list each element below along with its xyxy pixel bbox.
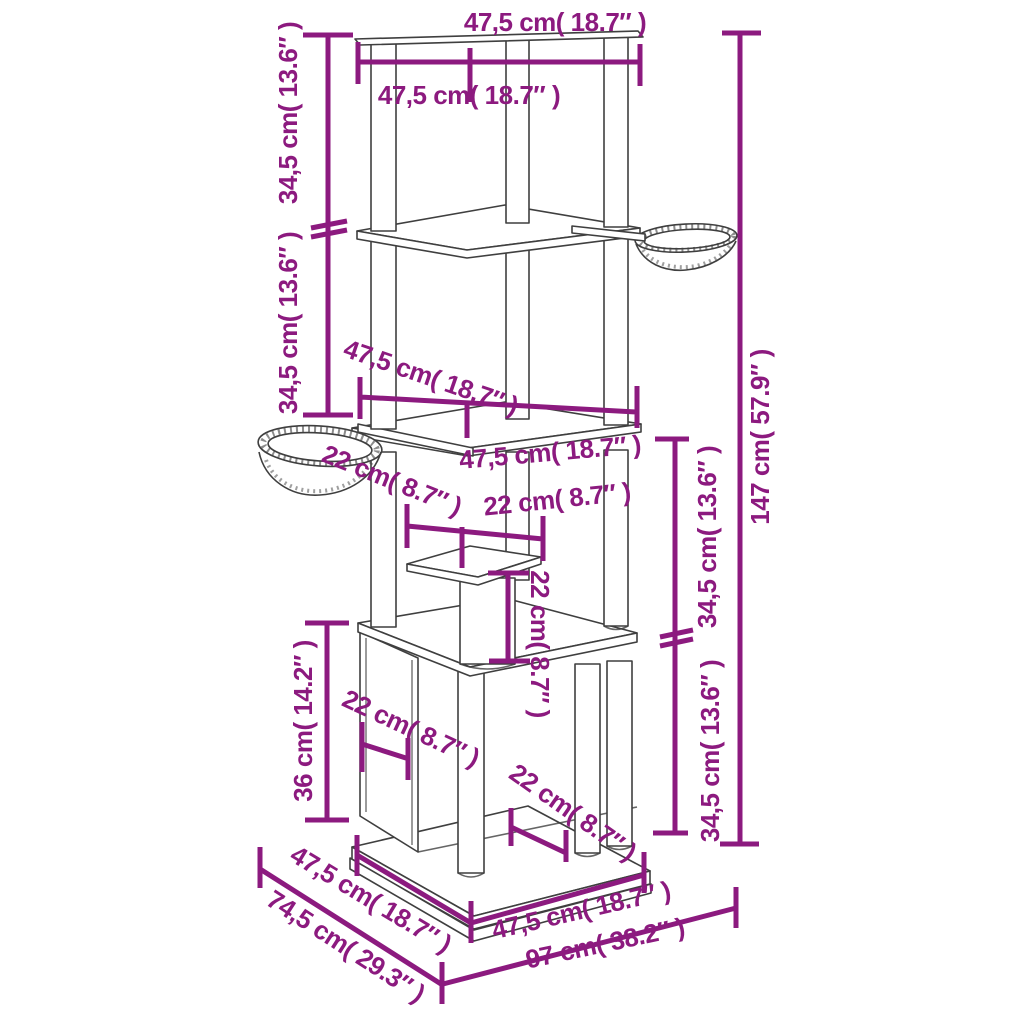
- right-basket: [572, 221, 738, 270]
- dim-label-right-upper-section-height: 34,5 cm( 13.6″ ): [694, 446, 720, 628]
- dim-label-small-post-height: 22 cm( 8.7″ ): [527, 570, 553, 718]
- dim-label-right-lower-section-height: 34,5 cm( 13.6″ ): [697, 660, 723, 842]
- dim-label-condo-height: 36 cm( 14.2″ ): [290, 640, 316, 802]
- dim-label-upper-section-height: 34,5 cm( 13.6″ ): [275, 22, 301, 204]
- dimension-diagram: 47,5 cm( 18.7″ ) 47,5 cm( 18.7″ ) 34,5 c…: [0, 0, 1024, 1024]
- dim-label-top-width: 47,5 cm( 18.7″ ): [464, 9, 646, 35]
- dim-label-upper-shelf-width: 47,5 cm( 18.7″ ): [378, 82, 560, 108]
- scratching-posts-upper: [371, 37, 628, 231]
- dim-label-total-height: 147 cm( 57.9″ ): [747, 349, 773, 525]
- dim-label-second-section-height: 34,5 cm( 13.6″ ): [275, 232, 301, 414]
